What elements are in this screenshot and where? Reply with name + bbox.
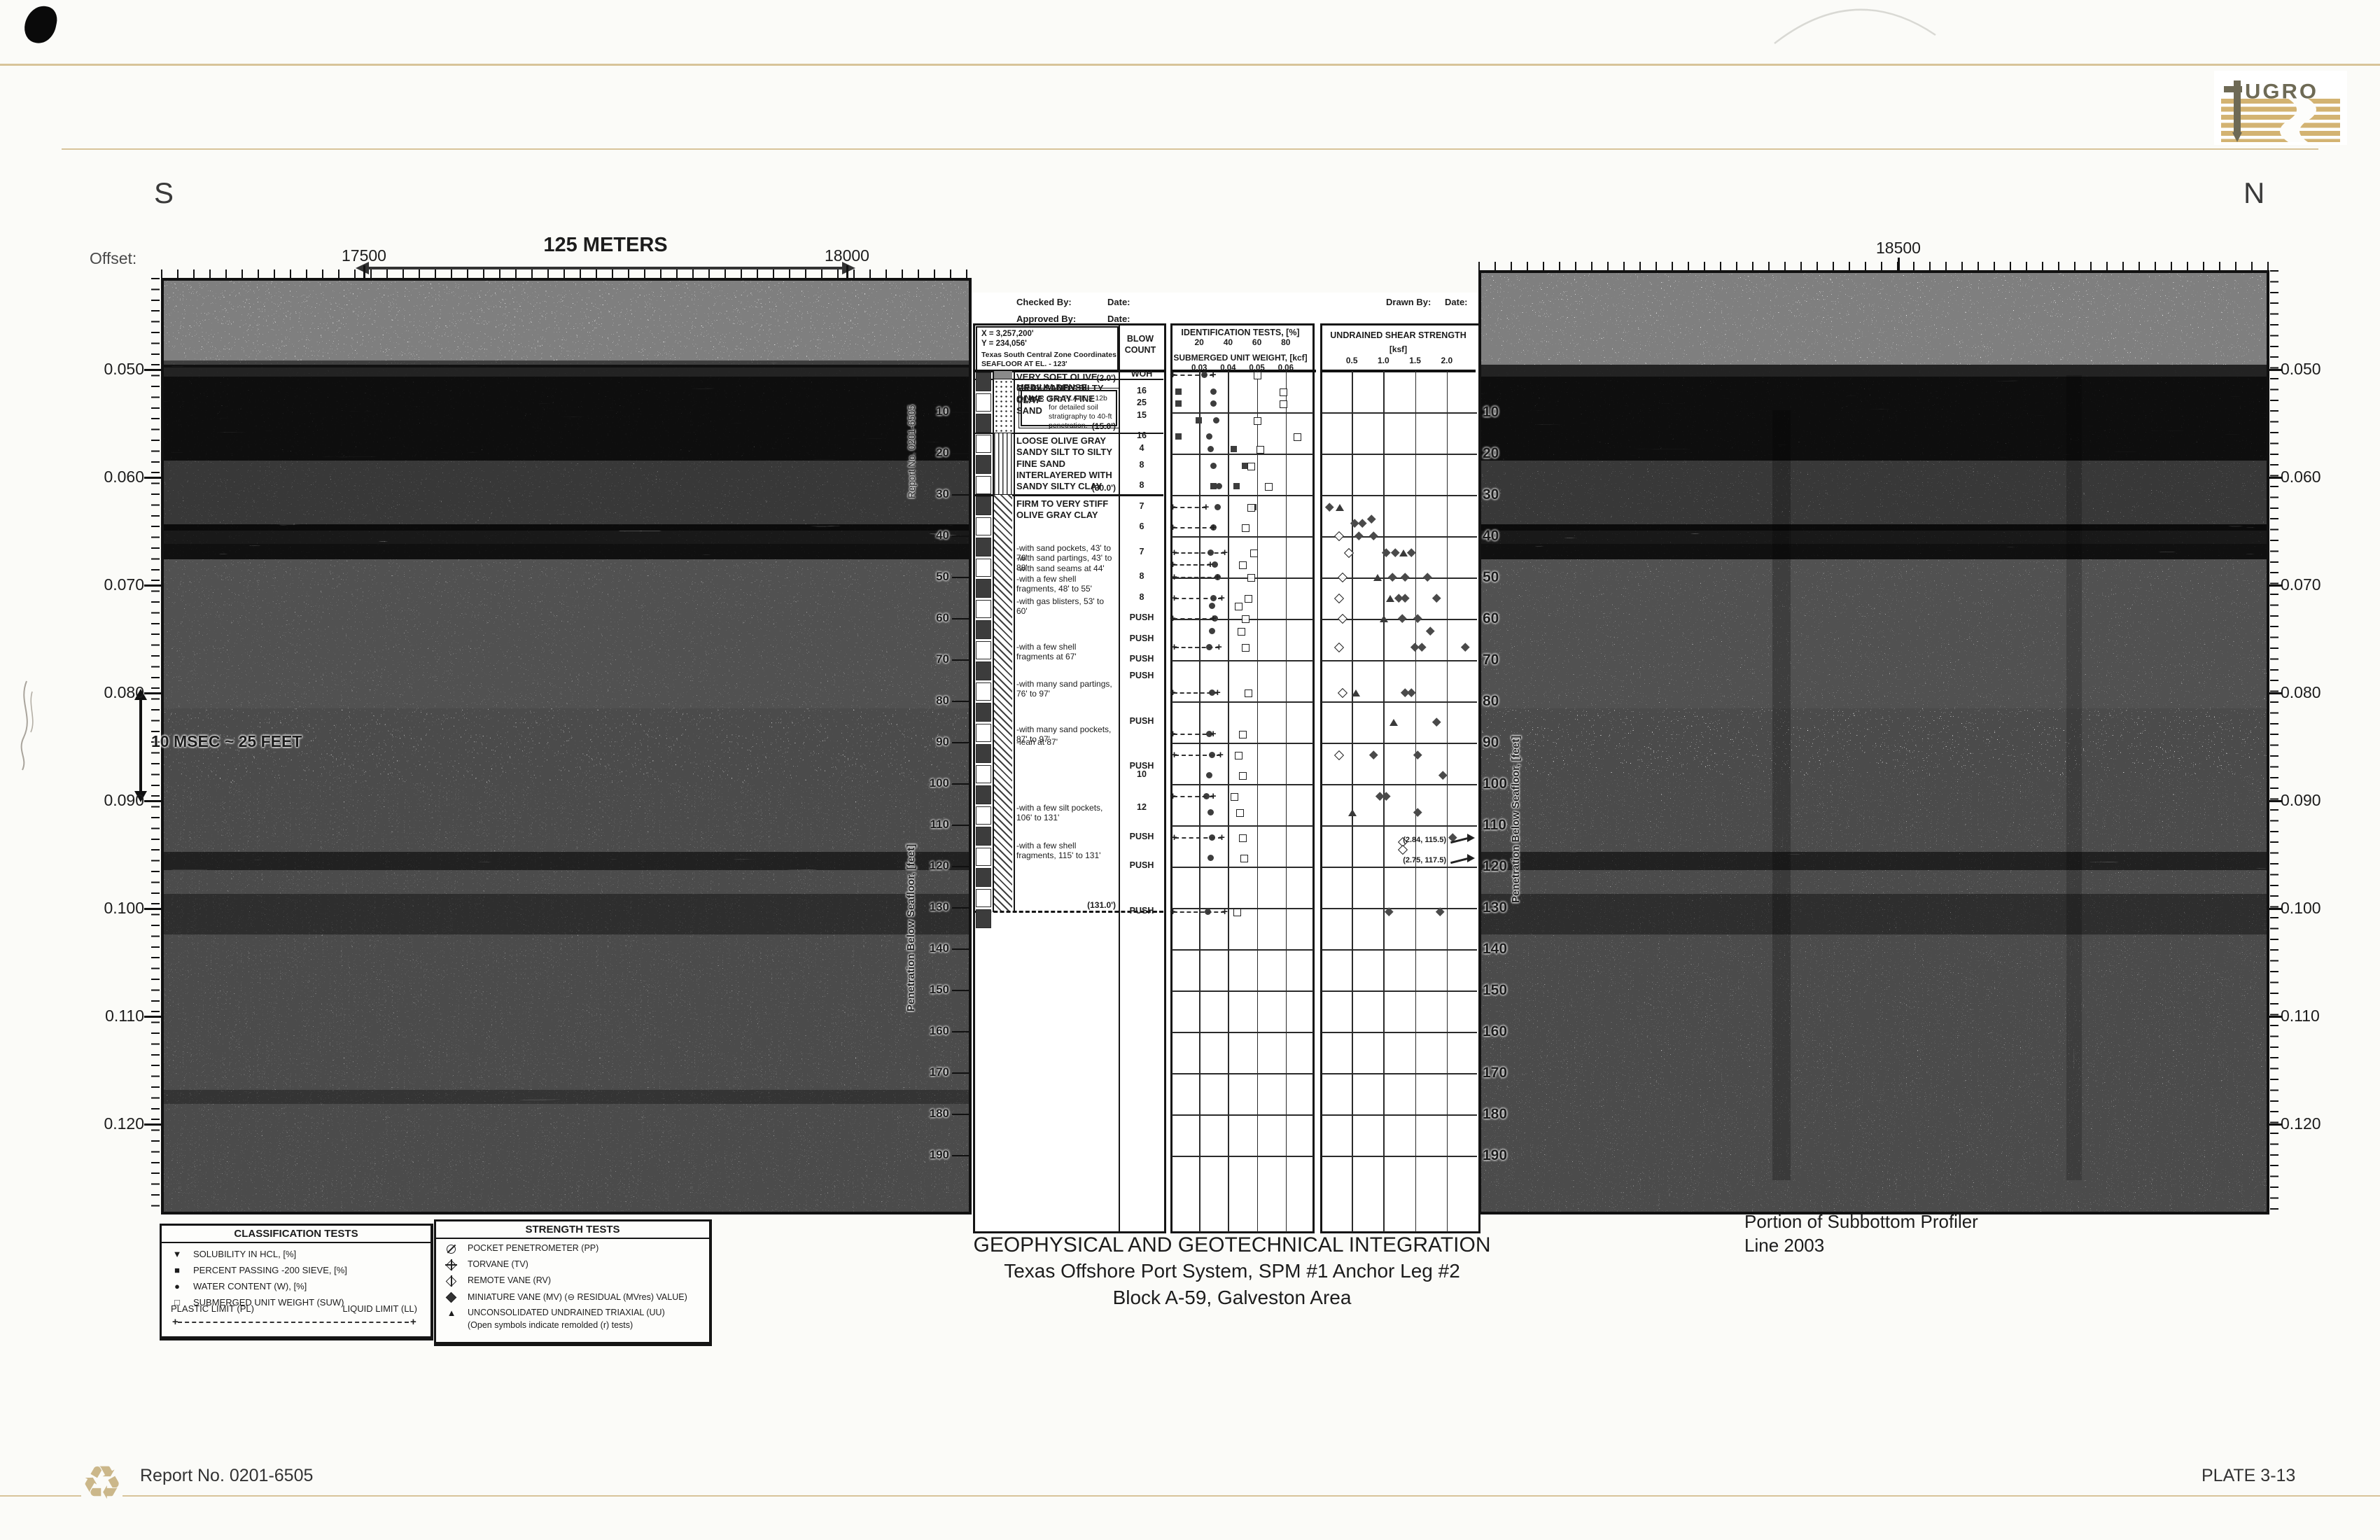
- str-tick-label: 0.5: [1338, 356, 1366, 365]
- offset-tick-label: 18000: [812, 246, 882, 265]
- id-point-open-square: [1239, 834, 1247, 842]
- blow-count-value: 7: [1119, 547, 1165, 556]
- suw-tick-label: 0.04: [1212, 364, 1243, 372]
- id-gridline-v: [1228, 371, 1229, 1232]
- ll-plus: +: [1207, 559, 1214, 570]
- legend-footnote: (Open symbols indicate remolded (r) test…: [468, 1320, 633, 1330]
- id-point-open-square: [1280, 388, 1287, 396]
- time-tick-left: [144, 1016, 161, 1018]
- blow-count-value: 16: [1119, 430, 1165, 440]
- gridline-10ft: [1322, 990, 1477, 992]
- sample-interval-mark: [976, 496, 991, 515]
- recycle-icon: ♻: [81, 1456, 122, 1510]
- pl-ll-legend-line: [178, 1322, 409, 1323]
- layer-note: -with sand seams at 44': [1016, 563, 1116, 573]
- ll-legend-plus: +: [410, 1316, 416, 1328]
- ll-plus: +: [1210, 612, 1217, 624]
- ll-plus: +: [1210, 790, 1217, 802]
- id-point-filled-square: [1210, 483, 1217, 489]
- strength-box: [1320, 323, 1480, 1233]
- ll-plus: +: [1203, 501, 1210, 513]
- shotpoint-ticks-left: [161, 269, 972, 278]
- depth-label-right: 100: [1483, 776, 1525, 792]
- gridline-10ft: [1172, 908, 1313, 909]
- id-point-open-square: [1280, 400, 1287, 408]
- time-label-right: 0.110: [2281, 1007, 2320, 1025]
- blow-header-divider: [1119, 323, 1120, 371]
- id-point-open-square: [1235, 603, 1242, 610]
- sample-interval-mark: [976, 538, 991, 556]
- depth-label-left: 10: [913, 405, 949, 419]
- pl-ll-range: [1173, 527, 1214, 528]
- blow-count-value: PUSH: [1119, 633, 1165, 643]
- time-label-right: 0.080: [2281, 683, 2321, 702]
- sample-interval-mark: [976, 455, 991, 474]
- time-tick-right: [2268, 369, 2282, 371]
- id-point-open-square: [1242, 644, 1249, 652]
- scan-fold-curve: [1771, 0, 1939, 49]
- time-label-right: 0.060: [2281, 468, 2321, 486]
- blow-count-value: 6: [1119, 521, 1165, 531]
- id-point-open-square: [1238, 628, 1245, 636]
- id-point-open-square: [1247, 574, 1255, 582]
- offset-tick-label: 17500: [329, 246, 399, 265]
- time-tick-right: [2268, 800, 2282, 802]
- gridline-10ft: [1322, 701, 1477, 703]
- id-point-open-square: [1250, 549, 1258, 557]
- depth-label-left: 180: [913, 1107, 949, 1121]
- depth-tick-left: [952, 1155, 969, 1157]
- time-label-left: 0.110: [88, 1007, 144, 1025]
- id-point-open-square: [1233, 909, 1241, 916]
- scan-rule-bottom: [0, 1495, 2380, 1497]
- depth-label-right: 40: [1483, 528, 1525, 545]
- gridline-10ft: [1172, 536, 1313, 538]
- id-point-open-square: [1294, 433, 1301, 441]
- depth-label-left: 190: [913, 1148, 949, 1162]
- fugro-logo-text: UGRO: [2245, 80, 2318, 104]
- pl-plus: +: [1170, 687, 1176, 699]
- pl-label: PLASTIC LIMIT (PL): [171, 1303, 254, 1314]
- gridline-10ft: [1322, 660, 1477, 661]
- id-point-filled-circle: [1207, 809, 1214, 815]
- pl-ll-range: [1175, 647, 1219, 648]
- depth-label-right: 80: [1483, 693, 1525, 710]
- shotpoint-ticks-right: [1478, 262, 2269, 270]
- layer-boundary-label: (2.0'): [1046, 373, 1116, 383]
- legend-item-label: TORVANE (TV): [468, 1259, 528, 1269]
- layer-note: -with a few shell fragments at 67': [1016, 642, 1116, 661]
- time-label-left: 0.100: [88, 899, 144, 918]
- time-label-left: 0.060: [88, 468, 144, 486]
- depth-tick-left: [952, 948, 969, 951]
- blow-count-value: 12: [1119, 802, 1165, 812]
- time-tick-left: [144, 1123, 161, 1126]
- id-gridline-v: [1257, 371, 1259, 1232]
- gridline-10ft: [1172, 825, 1313, 827]
- depth-label-left: 140: [913, 941, 949, 955]
- sample-interval-mark: [976, 909, 991, 928]
- time-label-right: 0.100: [2281, 899, 2321, 918]
- suw-tick-label: 0.06: [1270, 364, 1301, 372]
- time-tick-right: [2268, 1123, 2282, 1126]
- depth-label-right: 20: [1483, 445, 1525, 462]
- offset-tick-mark: [363, 265, 365, 278]
- pencil-mark: [10, 678, 41, 776]
- sample-interval-mark: [976, 620, 991, 639]
- sample-interval-mark: [976, 827, 991, 846]
- blow-count-value: 7: [1119, 501, 1165, 511]
- str-point-filled-triangle: [1399, 549, 1408, 556]
- gridline-10ft: [1172, 1156, 1313, 1157]
- legend-symbol-mv: [444, 1291, 459, 1303]
- blow-count-value: 8: [1119, 480, 1165, 490]
- depth-label-right: 150: [1483, 982, 1525, 999]
- id-point-filled-circle: [1206, 772, 1212, 778]
- location-box: X = 3,257,200' Y = 234,056' Texas South …: [976, 326, 1119, 371]
- depth-label-left: 80: [913, 694, 949, 708]
- blow-count-value: 10: [1119, 769, 1165, 779]
- pl-ll-range: [1173, 911, 1225, 913]
- str-point-filled-triangle: [1373, 574, 1382, 581]
- scan-corner-blob: [22, 3, 59, 46]
- depth-tick-left: [952, 618, 969, 620]
- scan-rule-top-2: [62, 148, 2318, 150]
- gridline-10ft: [1172, 412, 1313, 414]
- time-label-left: 0.050: [88, 360, 144, 379]
- blow-count-value: PUSH: [1119, 860, 1165, 870]
- sample-interval-mark: [976, 414, 991, 433]
- legend-symbol-part: [446, 1292, 457, 1303]
- depth-label-right: 160: [1483, 1023, 1525, 1040]
- sample-interval-mark: [976, 744, 991, 763]
- offscale-arrowhead: [1467, 834, 1475, 842]
- blow-count-value: 16: [1119, 386, 1165, 395]
- time-label-right: 0.070: [2281, 575, 2321, 594]
- ll-plus: +: [1210, 521, 1217, 533]
- time-label-right: 0.090: [2281, 791, 2321, 810]
- fugro-logo-f-tip: [2232, 132, 2242, 142]
- time-tick-right: [2268, 477, 2282, 479]
- gridline-10ft: [1322, 1114, 1477, 1116]
- gridline-10ft: [1322, 784, 1477, 785]
- gridline-10ft: [1172, 949, 1313, 951]
- sample-interval-mark: [976, 476, 991, 495]
- depth-label-right: 70: [1483, 652, 1525, 668]
- scalebar-line: [368, 267, 843, 269]
- id-point-open-square: [1245, 689, 1252, 697]
- gridline-10ft: [1172, 1073, 1313, 1074]
- main-title-line2: Texas Offshore Port System, SPM #1 Ancho…: [931, 1260, 1533, 1282]
- location-y: Y = 234,056': [981, 339, 1027, 348]
- id-point-open-square: [1242, 615, 1249, 623]
- fugro-logo-f-stem: [2234, 80, 2241, 132]
- depth-label-right: 50: [1483, 569, 1525, 586]
- str-tick-label: 1.5: [1401, 356, 1429, 365]
- depth-tick-left: [952, 577, 969, 579]
- sample-interval-mark: [976, 806, 991, 825]
- id-point-open-square: [1256, 446, 1264, 454]
- depth-label-right: 170: [1483, 1065, 1525, 1081]
- sample-interval-mark: [976, 393, 991, 412]
- depth-label-right: 120: [1483, 858, 1525, 875]
- sample-interval-mark: [976, 785, 991, 804]
- str-point-filled-triangle: [1389, 719, 1398, 726]
- sample-interval-mark: [976, 435, 991, 454]
- id-point-filled-circle: [1213, 417, 1219, 423]
- depth-label-right: 130: [1483, 899, 1525, 916]
- ll-plus: +: [1214, 687, 1221, 699]
- gridline-10ft: [1322, 1156, 1477, 1157]
- legend-item-label: MINIATURE VANE (MV) (⊖ RESIDUAL (MVres) …: [468, 1291, 687, 1302]
- main-title-line3: Block A-59, Galveston Area: [931, 1287, 1533, 1309]
- lithology-column-clay: [994, 495, 1012, 912]
- legend-symbol-tv: [444, 1259, 459, 1270]
- location-zone: Texas South Central Zone Coordinates: [981, 351, 1116, 359]
- gridline-10ft: [1322, 1073, 1477, 1074]
- depth-tick-left: [952, 907, 969, 909]
- profiler-caption-line2: Line 2003: [1744, 1235, 1824, 1256]
- depth-tick-left: [952, 535, 969, 538]
- time-label-left: 0.070: [88, 575, 144, 594]
- depth-label-left: 40: [913, 528, 949, 542]
- depth-label-right: 90: [1483, 734, 1525, 751]
- depth-tick-left: [952, 453, 969, 455]
- layer-note: -with a few silt pockets, 106' to 131': [1016, 803, 1116, 822]
- pl-plus: +: [1171, 571, 1177, 583]
- depth-label-right: 10: [1483, 404, 1525, 421]
- depth-label-left: 20: [913, 446, 949, 460]
- gridline-10ft: [1322, 454, 1477, 455]
- pl-ll-range: [1175, 598, 1222, 599]
- legend-symbol-part: [445, 1264, 457, 1266]
- gridline-10ft: [1172, 454, 1313, 455]
- drawn-by-label: Drawn By:: [1386, 297, 1431, 307]
- sample-interval-mark: [976, 372, 991, 391]
- pl-ll-range: [1173, 692, 1218, 694]
- penetration-axis-left: Penetration Below Seafloor, [feet]: [900, 759, 917, 1011]
- gridline-10ft: [1322, 495, 1477, 496]
- gridline-10ft: [1322, 867, 1477, 868]
- id-point-filled-square: [1196, 417, 1202, 423]
- depth-label-right: 60: [1483, 610, 1525, 627]
- gridline-10ft: [1172, 867, 1313, 868]
- strength-legend-title: STRENGTH TESTS: [436, 1224, 709, 1239]
- ll-plus: +: [1210, 728, 1217, 740]
- pl-ll-range: [1173, 734, 1214, 735]
- offset-tick-mark: [1898, 258, 1900, 270]
- blow-count-value: 8: [1119, 460, 1165, 470]
- layer-boundary-label: (15.0'): [1046, 421, 1116, 431]
- pl-legend-plus: +: [172, 1316, 178, 1328]
- legend-symbol-pp: [444, 1243, 459, 1254]
- pl-plus: +: [1170, 906, 1176, 918]
- legend-symbol-sq-filled: ■: [169, 1265, 185, 1276]
- layer-boundary-label: (30.0'): [1046, 483, 1116, 493]
- pl-plus: +: [1171, 832, 1177, 843]
- str-gridline-v: [1352, 371, 1353, 1232]
- depth-label-right: 110: [1483, 817, 1525, 834]
- depth-label-left: 30: [913, 487, 949, 501]
- time-tick-right: [2268, 908, 2282, 910]
- depth-tick-left: [952, 659, 969, 661]
- pl-ll-range: [1175, 552, 1225, 554]
- report-number-vertical: Report No. 0201-6505: [902, 386, 917, 498]
- depth-tick-left: [952, 742, 969, 744]
- id-point-open-square: [1240, 855, 1248, 862]
- depth-tick-left: [952, 1114, 969, 1116]
- id-point-open-square: [1239, 772, 1247, 780]
- pl-plus: +: [1170, 559, 1176, 570]
- id-point-open-square: [1235, 752, 1242, 759]
- layer-description: MEDIUM DENSE OLIVE GRAY FINE SAND: [1016, 382, 1116, 416]
- pl-ll-range: [1173, 507, 1206, 508]
- gridline-10ft: [1172, 660, 1313, 661]
- depth-label-right: 140: [1483, 941, 1525, 958]
- gridline-10ft: [1172, 495, 1313, 496]
- id-point-open-square: [1254, 372, 1261, 379]
- layer-note: -with gas blisters, 53' to 60': [1016, 596, 1116, 616]
- id-point-filled-square: [1231, 446, 1237, 452]
- pl-plus: +: [1170, 521, 1176, 533]
- layer-note: -with many sand partings, 76' to 97': [1016, 679, 1116, 699]
- profiler-caption-line1: Portion of Subbottom Profiler: [1744, 1211, 1978, 1233]
- pl-plus: +: [1171, 592, 1177, 604]
- gridline-10ft: [1322, 536, 1477, 538]
- pl-ll-range: [1173, 374, 1214, 376]
- depth-label-right: 180: [1483, 1106, 1525, 1123]
- sample-interval-mark: [976, 517, 991, 536]
- legend-symbol-uu: ▲: [444, 1308, 459, 1319]
- gridline-10ft: [1172, 743, 1313, 744]
- id-tick-label: 40: [1214, 337, 1242, 347]
- offscale-arrowhead: [1467, 854, 1475, 862]
- ll-plus: +: [1210, 369, 1217, 381]
- legend-item-label: WATER CONTENT (W), [%]: [193, 1281, 307, 1291]
- blow-count-value: PUSH: [1119, 832, 1165, 841]
- id-point-filled-circle: [1210, 463, 1217, 469]
- blow-count-value: 4: [1119, 443, 1165, 453]
- depth-label-right: 30: [1483, 486, 1525, 503]
- id-gridline-v: [1286, 371, 1287, 1232]
- id-point-filled-circle: [1207, 446, 1214, 452]
- gridline-10ft: [1172, 990, 1313, 992]
- log-column-divider: [1014, 371, 1015, 912]
- legend-symbol-part: [451, 1275, 452, 1287]
- blow-count-value: PUSH: [1119, 906, 1165, 916]
- str-point-filled-triangle: [1336, 504, 1344, 511]
- layer-description: FIRM TO VERY STIFF OLIVE GRAY CLAY: [1016, 498, 1116, 521]
- id-tick-label: 80: [1272, 337, 1300, 347]
- layer-note: -with a few shell fragments, 115' to 131…: [1016, 841, 1116, 860]
- depth-tick-left: [952, 866, 969, 868]
- time-tick-left: [144, 584, 161, 587]
- gridline-10ft: [1172, 784, 1313, 785]
- pl-plus: +: [1170, 790, 1176, 802]
- gridline-10ft: [1322, 908, 1477, 909]
- sample-interval-mark: [976, 868, 991, 887]
- ll-plus: +: [1214, 571, 1221, 583]
- id-point-filled-circle: [1210, 400, 1217, 407]
- depth-label-left: 120: [913, 859, 949, 873]
- blow-count-value: WOH: [1119, 369, 1165, 379]
- sample-interval-mark: [976, 661, 991, 680]
- blow-count-value: 8: [1119, 592, 1165, 602]
- id-point-open-square: [1247, 463, 1255, 470]
- legend-symbol-circle-filled: ●: [169, 1281, 185, 1292]
- id-gridline-v: [1199, 371, 1200, 1232]
- legend-item-label: PERCENT PASSING -200 SIEVE, [%]: [193, 1265, 347, 1275]
- pl-plus: +: [1170, 612, 1176, 624]
- depth-label-left: 130: [913, 900, 949, 914]
- blow-count-value: PUSH: [1119, 716, 1165, 726]
- approved-by-label: Approved By:: [1016, 314, 1076, 324]
- direction-north: N: [2243, 176, 2264, 210]
- time-label-left: 0.090: [88, 791, 144, 810]
- time-tick-left: [144, 477, 161, 479]
- sample-interval-mark: [976, 641, 991, 660]
- sample-interval-mark: [976, 703, 991, 722]
- depth-tick-left: [952, 783, 969, 785]
- pl-ll-range: [1175, 755, 1221, 756]
- location-x: X = 3,257,200': [981, 330, 1034, 338]
- depth-label-left: 100: [913, 776, 949, 790]
- blow-count-value: 8: [1119, 571, 1165, 581]
- layer-boundary-label: (131.0'): [1046, 900, 1116, 910]
- legend-item-label: SOLUBILITY IN HCL, [%]: [193, 1249, 296, 1259]
- id-point-filled-circle: [1206, 433, 1212, 440]
- sample-interval-mark: [976, 889, 991, 908]
- depth-tick-left: [952, 701, 969, 703]
- time-label-right: 0.120: [2281, 1114, 2321, 1133]
- legend-item-label: UNCONSOLIDATED UNDRAINED TRIAXIAL (UU): [468, 1308, 665, 1317]
- time-tick-left: [144, 800, 161, 802]
- str-gridline-v: [1383, 371, 1385, 1232]
- time-tick-left: [144, 692, 161, 694]
- lithology-column-silt: [994, 433, 1012, 496]
- str-point-filled-triangle: [1352, 689, 1360, 696]
- depth-tick-left: [952, 990, 969, 992]
- msec-arrow-line: [139, 697, 142, 794]
- time-label-right: 0.050: [2281, 360, 2321, 379]
- gridline-10ft: [1322, 743, 1477, 744]
- gridline-10ft: [1172, 701, 1313, 703]
- id-point-open-square: [1254, 417, 1261, 425]
- pl-ll-range: [1175, 837, 1222, 839]
- gridline-10ft: [1322, 1032, 1477, 1033]
- gridline-10ft: [1322, 825, 1477, 827]
- lithology-column-sand: [994, 379, 1012, 433]
- sample-interval-mark: [976, 600, 991, 619]
- gridline-10ft: [1322, 412, 1477, 414]
- id-point-open-square: [1242, 524, 1249, 532]
- checked-date-label: Date:: [1107, 297, 1130, 307]
- layer-note: -with a few shell fragments, 48' to 55': [1016, 574, 1116, 594]
- drawn-date-label: Date:: [1445, 297, 1468, 307]
- scalebar-meters: 125 METERS: [500, 234, 710, 257]
- gridline-10ft: [1172, 1114, 1313, 1116]
- msec-note: 10 MSEC ~ 25 FEET: [151, 732, 302, 751]
- location-seafloor: SEAFLOOR AT EL. - 123': [981, 360, 1067, 368]
- approved-date-label: Date:: [1107, 314, 1130, 324]
- id-point-open-square: [1245, 595, 1252, 603]
- offscale-annotation: (2.75, 117.5): [1369, 856, 1446, 864]
- seafloor-line: [1320, 370, 1476, 372]
- id-chart-title: IDENTIFICATION TESTS, [%]: [1170, 328, 1310, 337]
- id-point-filled-circle: [1207, 855, 1214, 861]
- offscale-annotation: (2.84, 115.5): [1369, 836, 1446, 844]
- fugro-logo: UGRO: [2214, 71, 2347, 145]
